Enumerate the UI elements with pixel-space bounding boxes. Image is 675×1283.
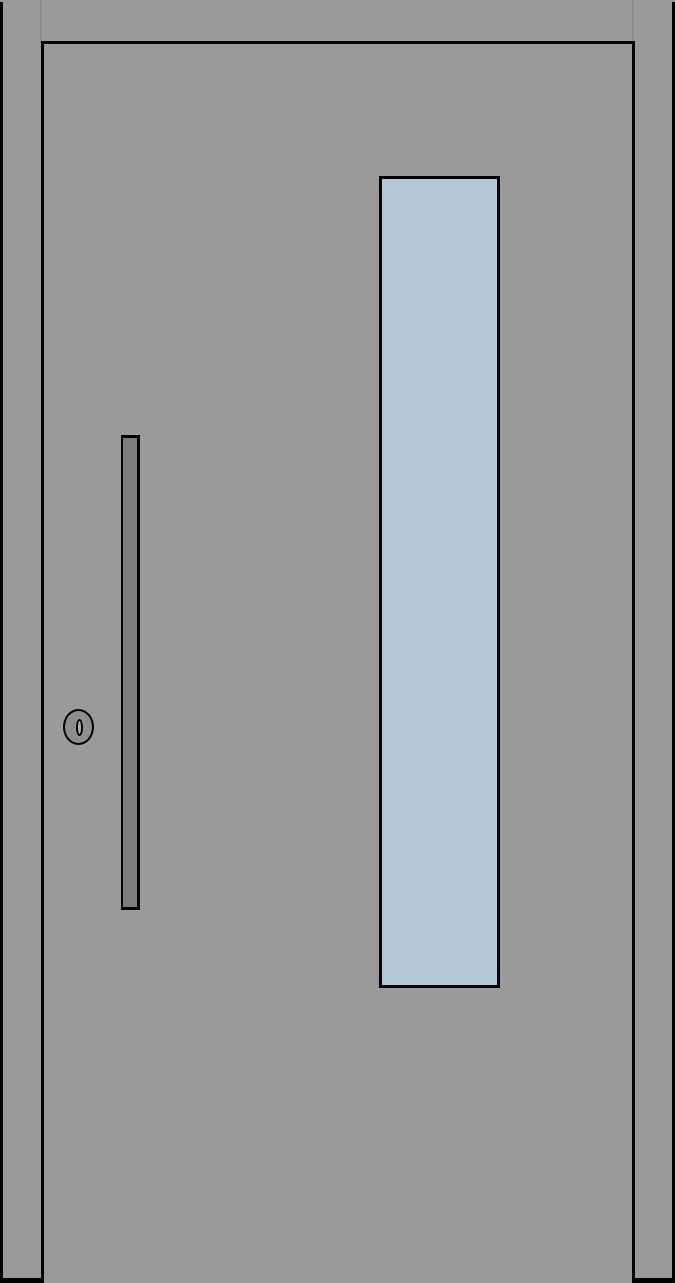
frame-outline-left (0, 2, 3, 1283)
keyhole-icon (76, 719, 83, 736)
glass-panel (379, 176, 500, 988)
lock-cylinder (63, 709, 94, 745)
frame-joint-right (632, 0, 634, 41)
frame-joint-left (40, 0, 42, 41)
door-elevation-drawing (0, 0, 675, 1283)
door-handle-bar (121, 435, 140, 910)
